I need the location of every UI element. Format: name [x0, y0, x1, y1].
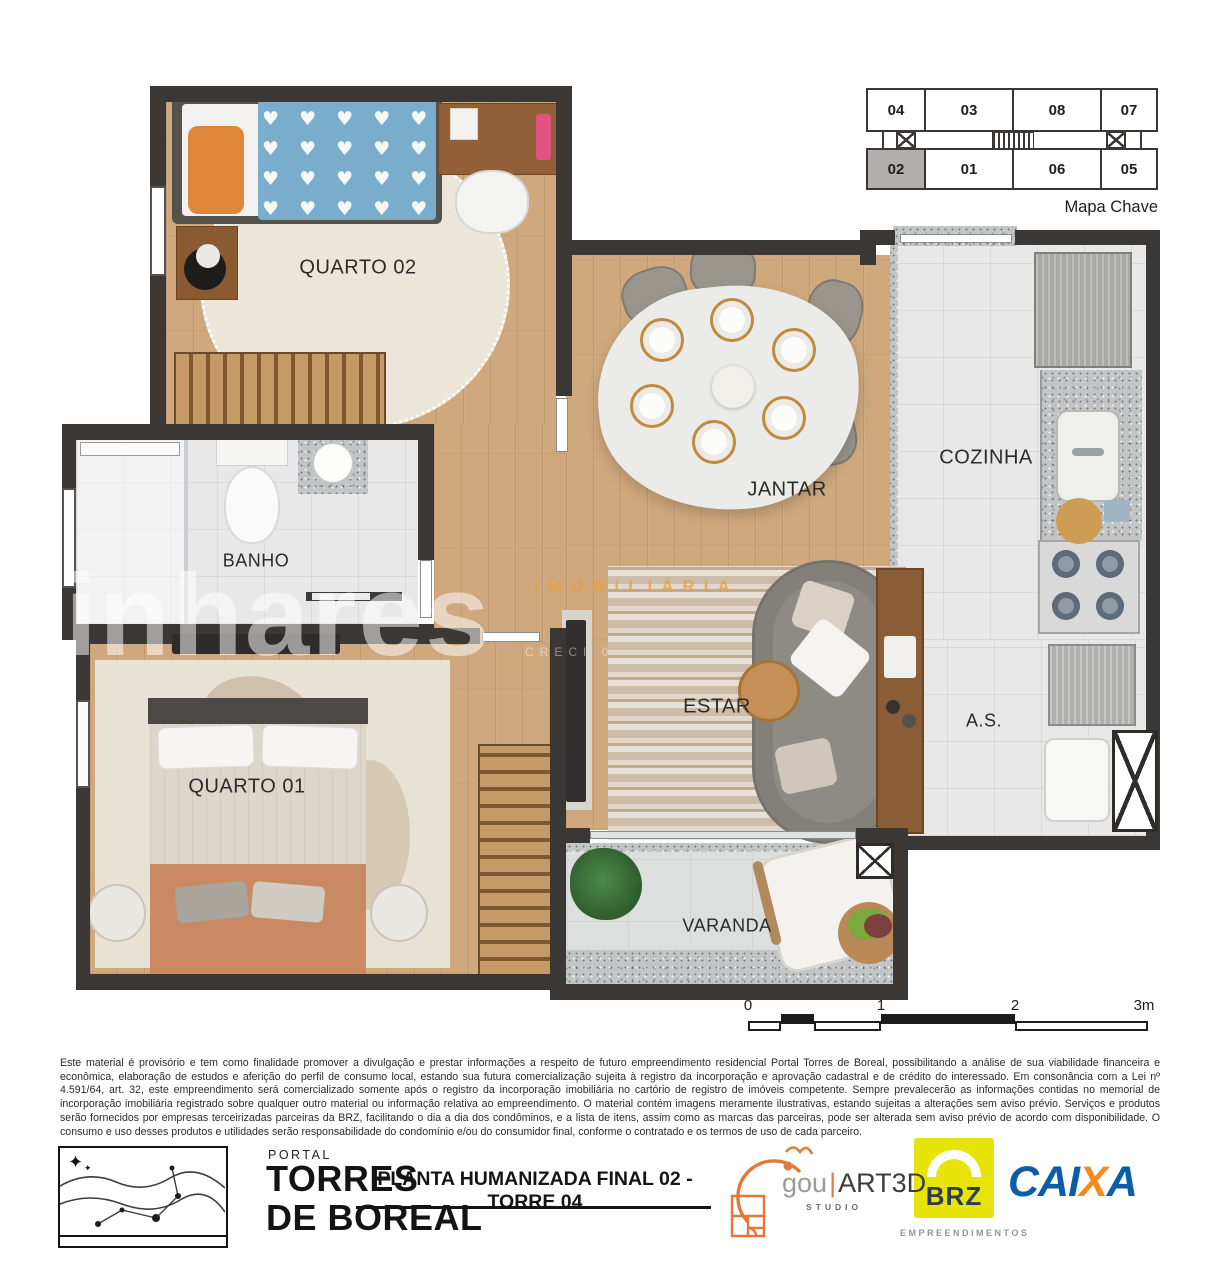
- wall-quarto02-left-lower: [150, 276, 166, 426]
- window-quarto01: [76, 700, 90, 788]
- unit-number: 06: [1049, 161, 1066, 178]
- scale-bar-segment: [881, 1014, 1015, 1024]
- caixa-part1: CAI: [1008, 1158, 1079, 1206]
- key-map-unit-07: 07: [1100, 88, 1158, 132]
- brz-subtitle: EMPREENDIMENTOS: [900, 1228, 1010, 1238]
- shower-area: [78, 440, 184, 624]
- scale-tick-1: 1: [877, 997, 885, 1014]
- plant-pot-leaves-red: [864, 914, 892, 938]
- torres-de-boreal-logo: ✦ ✦: [58, 1146, 228, 1248]
- blanket-quarto02: [258, 100, 436, 220]
- kitchen-sink: [1056, 410, 1120, 502]
- wall-varanda-bottom: [550, 984, 908, 1000]
- room-label-quarto01: QUARTO 01: [188, 776, 305, 799]
- unit-number: 02: [888, 161, 905, 178]
- washing-machine: [1048, 644, 1136, 726]
- legal-disclaimer: Este material é provisório e tem como fi…: [60, 1057, 1160, 1140]
- window-banho: [62, 488, 76, 588]
- tv-estar: [566, 620, 586, 802]
- room-label-estar: ESTAR: [683, 696, 751, 719]
- room-label-quarto02: QUARTO 02: [299, 257, 416, 280]
- nightstand-left: [88, 884, 146, 942]
- unit-number: 04: [888, 102, 905, 119]
- wall-quarto02-left-upper: [150, 102, 166, 186]
- shower-glass: [184, 440, 188, 624]
- bed-pillow-left: [157, 724, 254, 769]
- sliding-glass-door: [590, 831, 856, 839]
- scale-bar-segment: [814, 1021, 881, 1031]
- key-map: 04 03 08 07 02 01 06 05: [866, 88, 1158, 190]
- place-setting: [710, 298, 754, 342]
- wall-quarto02-top: [150, 86, 572, 102]
- nightstand-right: [370, 884, 428, 942]
- wall-varanda-right: [893, 843, 908, 1000]
- floor-hall: [434, 424, 566, 644]
- scale-bar-segment: [781, 1014, 814, 1024]
- caixa-x-icon: X: [1079, 1158, 1107, 1206]
- elevator-icon: [896, 131, 916, 149]
- door-leaf-quarto02: [556, 398, 568, 452]
- wall-banho-right-upper: [418, 440, 434, 560]
- key-map-unit-05: 05: [1100, 148, 1158, 190]
- fridge: [1034, 252, 1132, 368]
- sideboard: [876, 568, 924, 834]
- place-setting: [692, 420, 736, 464]
- kitchen-faucet: [1072, 448, 1104, 456]
- brz-arc-icon: [927, 1150, 981, 1177]
- wardrobe-quarto01: [478, 744, 552, 976]
- wall-banho-left-lower: [62, 588, 76, 624]
- accent-pillow-1: [174, 880, 249, 923]
- room-label-cozinha: COZINHA: [939, 447, 1033, 470]
- scale-tick-0: 0: [744, 997, 752, 1014]
- unit-number: 08: [1049, 102, 1066, 119]
- unit-number: 07: [1121, 102, 1138, 119]
- laundry-tank: [1044, 738, 1110, 822]
- constellation-graphic: [60, 1152, 225, 1240]
- wardrobe-rack-quarto02: [174, 352, 386, 428]
- key-map-unit-03: 03: [924, 88, 1014, 132]
- door-leaf-entry: [900, 234, 1012, 243]
- desk-chair-quarto02: [455, 170, 529, 234]
- door-leaf-banho: [420, 560, 432, 618]
- desk-notebook: [536, 114, 551, 160]
- wall-entry-joint: [860, 240, 876, 265]
- lamp-shade-quarto02: [196, 244, 220, 268]
- key-map-unit-01: 01: [924, 148, 1014, 190]
- shaft-area-servico: [1112, 730, 1158, 832]
- tv-quarto01: [172, 634, 340, 654]
- sink-banho: [312, 442, 354, 484]
- toilet-bowl: [224, 466, 280, 544]
- kitchen-towel: [1104, 500, 1130, 522]
- place-setting: [630, 384, 674, 428]
- studio-name-part1: gou: [782, 1168, 827, 1198]
- plant-large: [570, 848, 642, 920]
- shower-bar: [80, 442, 180, 456]
- wall-banho-top: [62, 424, 434, 440]
- room-label-area-servico: A.S.: [966, 711, 1002, 732]
- pillow-quarto02: [188, 126, 244, 214]
- stove: [1038, 540, 1140, 634]
- key-map-unit-02-highlighted: 02: [866, 148, 926, 190]
- key-map-unit-08: 08: [1012, 88, 1102, 132]
- wall-entry-right: [1015, 230, 1160, 245]
- room-label-banho: BANHO: [223, 551, 290, 572]
- bed-pillow-right: [261, 724, 358, 769]
- key-map-unit-04: 04: [866, 88, 926, 132]
- wall-quarto01-bottom: [76, 974, 566, 990]
- place-setting: [640, 318, 684, 362]
- scale-tick-3m: 3m: [1134, 997, 1155, 1014]
- stove-burner: [1096, 550, 1124, 578]
- studio-divider: |: [827, 1168, 838, 1198]
- sideboard-decor: [902, 714, 916, 728]
- sideboard-tray: [884, 636, 916, 678]
- scale-tick-2: 2: [1011, 997, 1019, 1014]
- window-quarto02: [150, 186, 166, 276]
- unit-number: 03: [961, 102, 978, 119]
- sideboard-decor: [886, 700, 900, 714]
- cutting-board: [1056, 498, 1102, 544]
- place-setting: [762, 396, 806, 440]
- wall-banho-left-upper: [62, 440, 76, 488]
- stove-burner: [1052, 592, 1080, 620]
- caixa-part3: A: [1107, 1158, 1137, 1206]
- unit-number: 01: [961, 161, 978, 178]
- stove-burner: [1052, 550, 1080, 578]
- wall-area-servico-bottom: [900, 836, 1160, 850]
- scale-bar-segment: [1015, 1021, 1148, 1031]
- wall-quarto01-right: [550, 628, 566, 974]
- caixa-logo: CAIXA: [1008, 1158, 1137, 1207]
- key-map-label: Mapa Chave: [1040, 198, 1158, 217]
- key-map-unit-06: 06: [1012, 148, 1102, 190]
- elevator-icon: [1106, 131, 1126, 149]
- accent-pillow-2: [251, 881, 326, 923]
- stove-burner: [1096, 592, 1124, 620]
- wall-quarto01-left-lower: [76, 788, 90, 974]
- studio-subtitle: STUDIO: [806, 1202, 862, 1212]
- bed-headboard-quarto01: [148, 698, 368, 724]
- room-label-jantar: JANTAR: [747, 479, 826, 502]
- wall-quarto01-left-upper: [76, 628, 90, 700]
- floor-plan-page: QUARTO 02 BANHO QUARTO 01 JANTAR COZINHA…: [0, 0, 1218, 1273]
- wall-estar-varanda-left: [550, 828, 590, 843]
- room-label-varanda: VARANDA: [682, 916, 771, 937]
- scale-bar-segment: [748, 1021, 781, 1031]
- wall-quarto02-right: [556, 86, 572, 396]
- toilet-tank: [216, 438, 288, 466]
- table-centerpiece: [712, 366, 754, 408]
- door-leaf-quarto01: [482, 632, 540, 642]
- title-underline: [356, 1206, 711, 1209]
- gouart3d-wordmark: gou|ART3D: [782, 1168, 926, 1199]
- place-setting: [772, 328, 816, 372]
- unit-number: 05: [1121, 161, 1138, 178]
- desk-paper: [450, 108, 478, 140]
- towel: [312, 593, 370, 600]
- wall-jantar-top: [556, 240, 876, 255]
- shaft-varanda: [856, 843, 894, 879]
- studio-name-part2: ART3D: [838, 1168, 926, 1198]
